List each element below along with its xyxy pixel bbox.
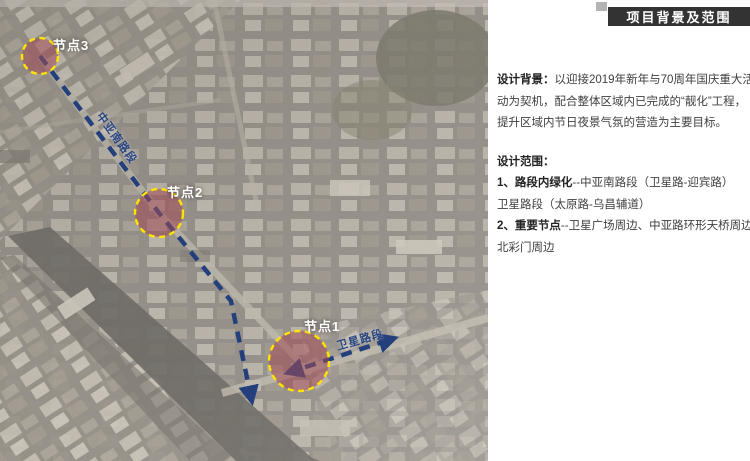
satellite-map: 节点3 节点2 节点1 中亚南路段 卫星路段 xyxy=(0,0,488,461)
scope-heading: 设计范围： xyxy=(497,152,747,174)
panel-body: 设计背景：以迎接2019年新年与70周年国庆重大活 动为契机，配合整体区域内已完… xyxy=(497,70,747,259)
design-scope-section: 设计范围： 1、路段内绿化--中亚南路段（卫星路-迎宾路） 卫星路段（太原路-乌… xyxy=(497,152,747,260)
background-line: 动为契机，配合整体区域内已完成的“靓化”工程， xyxy=(497,92,747,114)
scope-line: 北彩门周边 xyxy=(497,238,747,260)
page-title-text: 项目背景及范围 xyxy=(626,7,731,26)
node-1-circle xyxy=(269,331,329,391)
node-2-label: 节点2 xyxy=(167,185,203,200)
background-text: 提升区域内节日夜景气氛的营造为主要目标。 xyxy=(497,117,727,129)
satellite-texture xyxy=(0,0,488,461)
title-bar-notch xyxy=(596,2,607,11)
satellite-map-canvas: 节点3 节点2 节点1 中亚南路段 卫星路段 xyxy=(0,0,488,461)
scope-text: --中亚南路段（卫星路-迎宾路） xyxy=(572,177,733,189)
background-line: 提升区域内节日夜景气氛的营造为主要目标。 xyxy=(497,113,747,135)
background-text: 以迎接2019年新年与70周年国庆重大活 xyxy=(555,74,750,86)
scope-lead: 2、重要节点 xyxy=(497,220,561,232)
page-title: 项目背景及范围 xyxy=(608,7,750,26)
slide: 节点3 节点2 节点1 中亚南路段 卫星路段 项目背景及范围 设计背景：以迎接2… xyxy=(0,0,750,461)
background-line: 设计背景：以迎接2019年新年与70周年国庆重大活 xyxy=(497,70,747,92)
info-panel: 项目背景及范围 设计背景：以迎接2019年新年与70周年国庆重大活 动为契机，配… xyxy=(488,0,750,461)
scope-lead: 1、路段内绿化 xyxy=(497,177,572,189)
scope-line: 卫星路段（太原路-乌昌辅道） xyxy=(497,195,747,217)
background-text: 动为契机，配合整体区域内已完成的“靓化”工程， xyxy=(497,96,746,108)
node-1-label: 节点1 xyxy=(304,319,340,334)
node-3-label: 节点3 xyxy=(53,38,89,53)
scope-line: 2、重要节点--卫星广场周边、中亚路环形天桥周边、 xyxy=(497,216,747,238)
scope-text: 北彩门周边 xyxy=(497,242,555,254)
scope-text: --卫星广场周边、中亚路环形天桥周边、 xyxy=(561,220,750,232)
background-lead: 设计背景： xyxy=(497,74,555,86)
scope-line: 1、路段内绿化--中亚南路段（卫星路-迎宾路） xyxy=(497,173,747,195)
design-background-paragraph: 设计背景：以迎接2019年新年与70周年国庆重大活 动为契机，配合整体区域内已完… xyxy=(497,70,747,135)
scope-text: 卫星路段（太原路-乌昌辅道） xyxy=(497,199,650,211)
